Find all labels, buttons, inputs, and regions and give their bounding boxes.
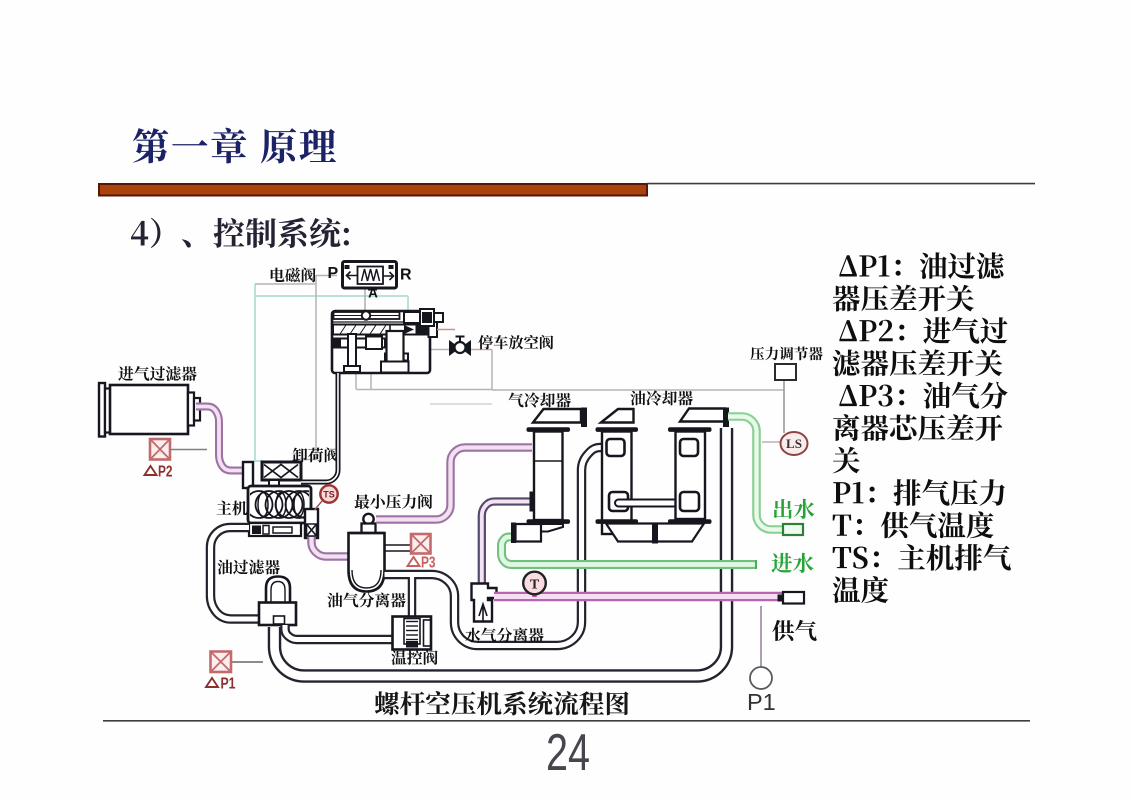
svg-text:TS: TS	[323, 490, 335, 500]
svg-text:P1: P1	[747, 689, 776, 715]
svg-text:P2: P2	[158, 464, 173, 481]
svg-text:P: P	[328, 265, 339, 282]
svg-text:R: R	[400, 267, 412, 284]
svg-text:T: T	[530, 578, 540, 593]
svg-text:A: A	[368, 286, 378, 301]
svg-text:P3: P3	[421, 555, 436, 572]
svg-text:P1: P1	[221, 676, 236, 693]
svg-text:24: 24	[546, 724, 590, 782]
svg-text:LS: LS	[786, 436, 802, 451]
